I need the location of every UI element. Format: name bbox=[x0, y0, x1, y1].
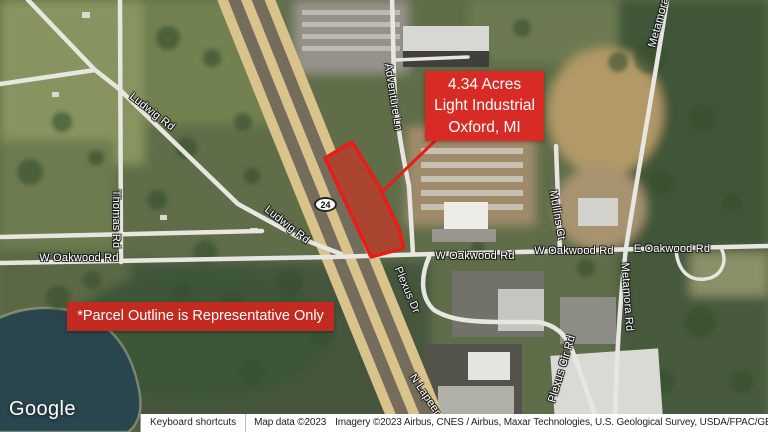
road-label-w-oakwood-rd-west: W Oakwood Rd bbox=[39, 252, 118, 264]
callout-box: 4.34 Acres Light Industrial Oxford, MI bbox=[425, 71, 544, 141]
attribution-text: Map data ©2023Imagery ©2023 Airbus, CNES… bbox=[246, 414, 768, 432]
road-label-e-oakwood-rd: E Oakwood Rd bbox=[634, 243, 710, 255]
google-logo[interactable]: Google bbox=[9, 398, 76, 421]
road-label-w-oakwood-rd-mid: W Oakwood Rd bbox=[435, 250, 514, 262]
disclaimer-banner: *Parcel Outline is Representative Only bbox=[67, 302, 334, 331]
callout-zoning: Light Industrial bbox=[425, 95, 544, 117]
road-label-thomas-rd: Thomas Rd bbox=[110, 190, 122, 249]
map-canvas[interactable]: Ludwig Rd Ludwig Rd Thomas Rd Adventure … bbox=[0, 0, 768, 432]
route-24-shield: 24 bbox=[314, 197, 337, 212]
imagery-credit: Imagery ©2023 Airbus, CNES / Airbus, Max… bbox=[335, 417, 768, 428]
footer-bar: Keyboard shortcuts Map data ©2023Imagery… bbox=[140, 414, 768, 432]
callout-location: Oxford, MI bbox=[425, 117, 544, 139]
road-label-w-oakwood-rd-east: W Oakwood Rd bbox=[534, 245, 613, 257]
map-data-credit: Map data ©2023 bbox=[254, 417, 326, 428]
callout-acreage: 4.34 Acres bbox=[425, 74, 544, 96]
keyboard-shortcuts-button[interactable]: Keyboard shortcuts bbox=[141, 414, 246, 432]
